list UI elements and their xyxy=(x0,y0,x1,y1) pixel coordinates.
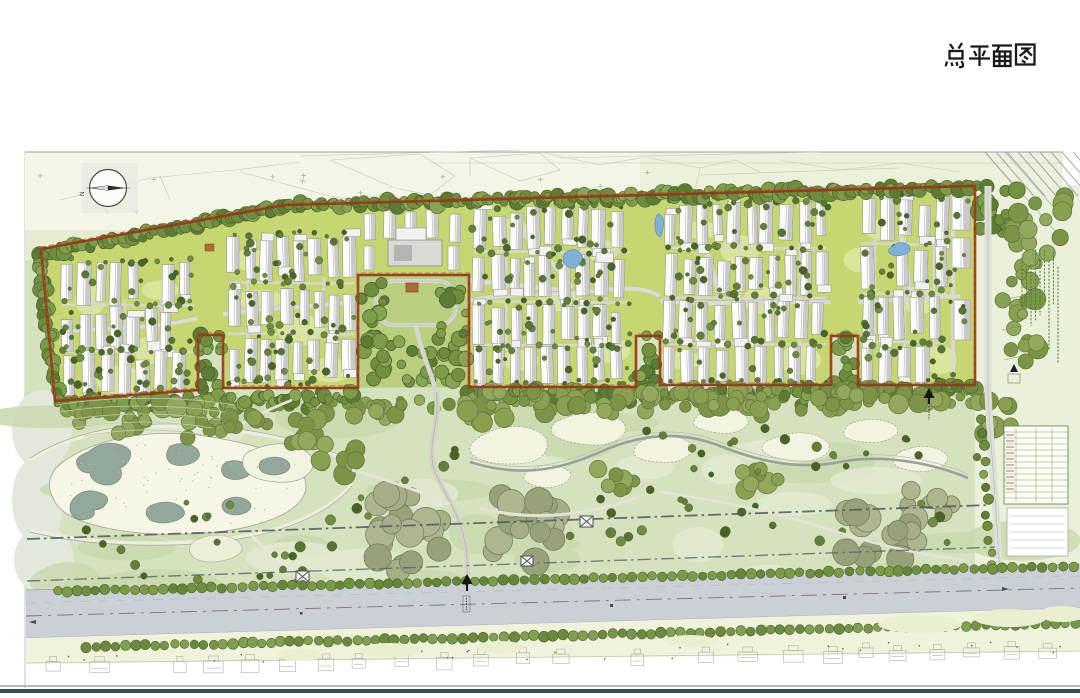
svg-text:N: N xyxy=(80,192,86,196)
